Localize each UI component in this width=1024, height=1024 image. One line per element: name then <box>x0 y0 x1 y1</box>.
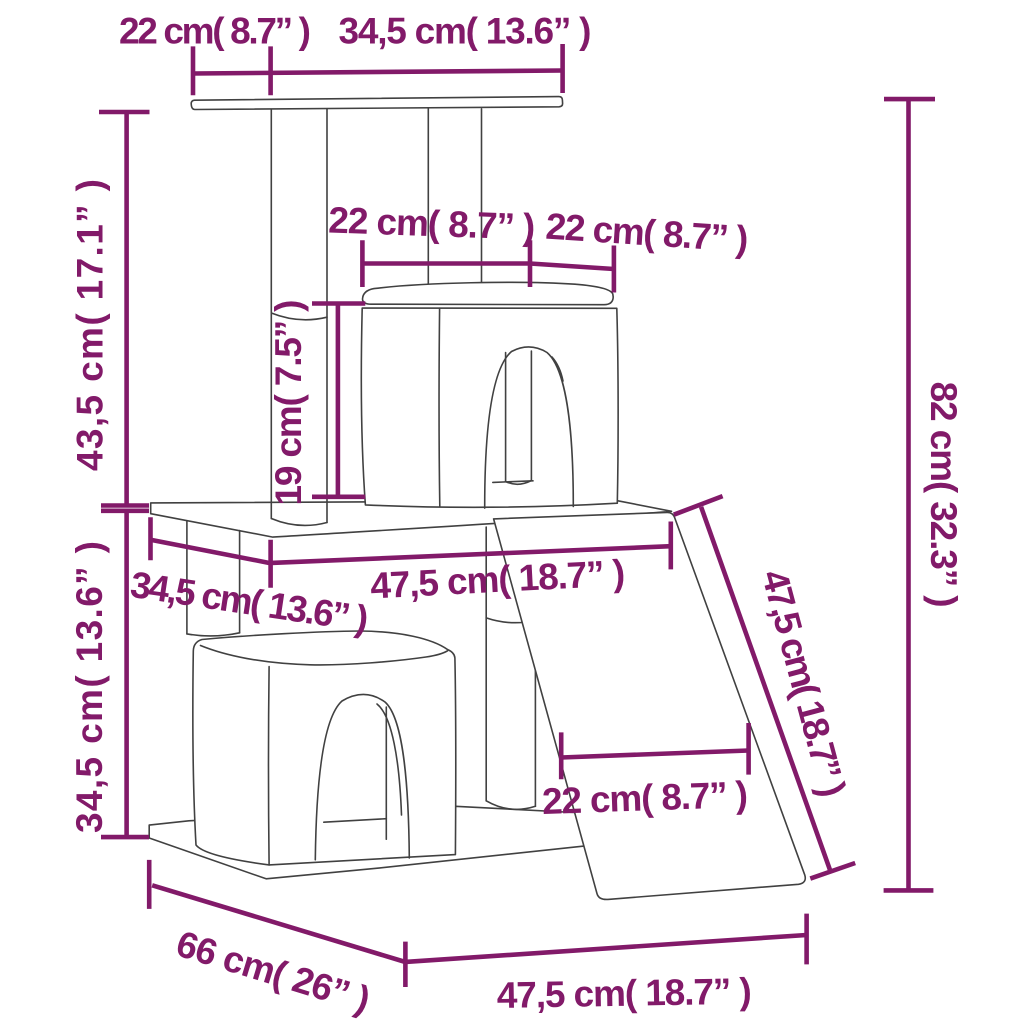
svg-text:43,5 cm( 17.1” ): 43,5 cm( 17.1” ) <box>70 179 111 471</box>
svg-text:19 cm( 7.5” ): 19 cm( 7.5” ) <box>268 300 309 506</box>
svg-text:82 cm( 32.3” ): 82 cm( 32.3” ) <box>923 382 964 608</box>
svg-text:47,5 cm( 18.7” ): 47,5 cm( 18.7” ) <box>496 971 752 1016</box>
svg-text:34,5 cm( 13.6” ): 34,5 cm( 13.6” ) <box>339 11 592 52</box>
svg-text:34,5 cm( 13.6” ): 34,5 cm( 13.6” ) <box>69 541 110 833</box>
svg-text:22 cm( 8.7” ): 22 cm( 8.7” ) <box>541 774 748 822</box>
svg-text:22 cm( 8.7” ): 22 cm( 8.7” ) <box>119 11 311 52</box>
svg-text:22 cm( 8.7” ): 22 cm( 8.7” ) <box>328 200 536 248</box>
